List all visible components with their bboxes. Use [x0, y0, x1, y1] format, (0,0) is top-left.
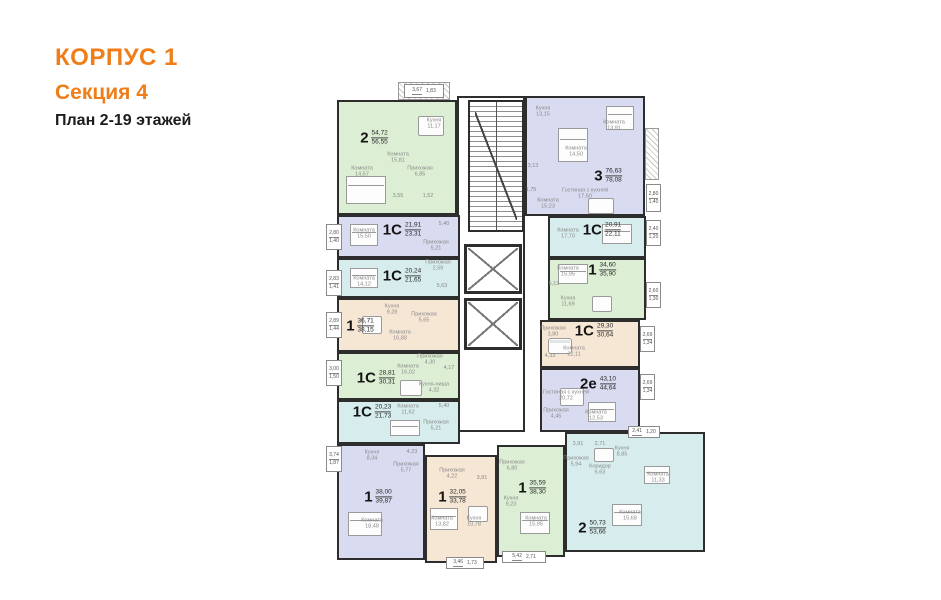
room-label: Прихожая4,22 [439, 468, 465, 481]
bed-icon [390, 420, 420, 436]
apartment-areas: 34,6035,90 [600, 261, 616, 278]
apartment-label: 254,7256,55 [360, 129, 388, 146]
balcony-label: 2,801,40 [646, 184, 661, 212]
room-label: Комната17,70 [557, 228, 579, 241]
apartment-type-number: 2е [580, 377, 597, 392]
apartment-type-number: 3 [594, 169, 602, 184]
side-ledge [645, 128, 659, 180]
apartment-type-number: 1С [353, 405, 372, 420]
room-label: Прихожая5,65 [411, 312, 437, 325]
room-label: Кухня11,69 [561, 296, 576, 309]
apartment-area-primary: 36,71 [358, 317, 374, 326]
apartment-type-number: 1 [438, 490, 446, 505]
balcony-area-half: 1,41 [329, 284, 339, 291]
balcony-label: 2,831,41 [326, 270, 342, 296]
room-label: Прихожая2,59 [425, 260, 451, 273]
apartment-label: 1С28,8130,31 [357, 369, 395, 386]
room-label: 3,91 [573, 441, 584, 447]
balcony-area-full: 2,69 [643, 332, 653, 340]
room-label: 4,33 [545, 353, 556, 359]
apartment-type-number: 1 [346, 319, 354, 334]
balcony-area-half: 1,40 [329, 238, 339, 245]
apartment-label: 134,6035,90 [588, 261, 616, 278]
apartment-type-number: 1 [518, 481, 526, 496]
balcony-label: 2,601,30 [646, 282, 661, 308]
balcony-area-half: 1,34 [643, 340, 653, 347]
apartment-area-primary: 20,91 [605, 221, 621, 230]
apartment-areas: 20,9122,11 [605, 221, 621, 238]
apartment-area-primary: 28,81 [379, 369, 395, 378]
apartment-area-total: 21,73 [375, 413, 391, 421]
room-label: Прихожая5,77 [393, 462, 419, 475]
balcony-area-full: 3,67 [412, 87, 422, 95]
balcony-label: 2,691,34 [640, 374, 655, 400]
balcony-area-half: 1,20 [649, 234, 659, 241]
room-label: Прихожая5,94 [563, 456, 589, 469]
room-label: Кухня13,15 [536, 106, 551, 119]
apartment-area-primary: 35,59 [530, 479, 546, 488]
apartment-area-total: 33,78 [450, 498, 466, 506]
room-label: Кухня-ниша4,32 [419, 382, 449, 395]
room-label: Комната11,33 [647, 472, 669, 485]
balcony-label: 2,691,34 [640, 326, 655, 352]
room-label: Кухня8,34 [365, 450, 380, 463]
balcony-area-half: 1,30 [649, 296, 659, 303]
elevator-2-icon [464, 298, 522, 350]
room-label: Комната14,12 [353, 276, 375, 289]
room-label: 2,71 [595, 441, 606, 447]
apartment-areas: 50,7353,66 [590, 519, 606, 536]
apartment-area-primary: 21,91 [405, 221, 421, 230]
apartment-label: 138,0039,87 [364, 488, 392, 505]
room-label: 3,55 [393, 193, 404, 199]
apartment-areas: 54,7256,55 [372, 129, 388, 146]
balcony-label: 3,001,50 [326, 360, 342, 386]
room-label: Прихожая6,80 [499, 460, 525, 473]
apartment-areas: 36,7138,15 [358, 317, 374, 334]
apartment-area-primary: 29,30 [597, 322, 613, 331]
room-label: Кухня9,23 [504, 496, 519, 509]
apartment-area-total: 38,15 [358, 327, 374, 335]
apartment-area-total: 35,90 [600, 271, 616, 279]
balcony-area-half: 1,87 [329, 460, 339, 467]
room-label: 4,23 [407, 449, 418, 455]
balcony-area-full: 2,83 [329, 276, 339, 284]
room-label: 3,81 [477, 475, 488, 481]
room-label: Комната13,82 [431, 516, 453, 529]
apartment-area-primary: 54,72 [372, 129, 388, 138]
balcony-area-half: 1,73 [467, 560, 477, 567]
room-label: 1,52 [423, 193, 434, 199]
apartment-type-number: 1С [583, 223, 602, 238]
room-label: Комната15,81 [387, 152, 409, 165]
apartment-type-number: 1 [364, 490, 372, 505]
room-label: Прихожая3,80 [540, 326, 566, 339]
balcony-area-full: 5,42 [512, 553, 522, 561]
room-label: 3,13 [528, 163, 539, 169]
room-label: Коридор6,63 [589, 464, 611, 477]
floor-plan-page: КОРПУС 1 Секция 4 План 2-19 этажей 254,7… [0, 0, 941, 600]
apartment-label: 132,0533,78 [438, 488, 466, 505]
room-label: Комната14,50 [565, 146, 587, 159]
floor-plan: 254,7256,55Кухня11,17Комната15,81Комната… [0, 0, 941, 600]
room-label: Кухня10,78 [467, 516, 482, 529]
balcony-area-full: 3,46 [453, 559, 463, 567]
apartment-area-primary: 76,63 [606, 167, 622, 176]
room-label: Комната11,62 [397, 404, 419, 417]
apartment-areas: 32,0533,78 [450, 488, 466, 505]
room-label: Прихожая4,45 [543, 408, 569, 421]
apartment-area-total: 53,66 [590, 529, 606, 537]
room-label: Прихожая6,85 [407, 166, 433, 179]
balcony-area-full: 2,69 [643, 380, 653, 388]
room-label: 4,17 [444, 365, 455, 371]
room-label: Кухня8,85 [615, 446, 630, 459]
room-label: Комната15,23 [537, 198, 559, 211]
apartment-label: 250,7353,66 [578, 519, 606, 536]
balcony-area-full: 2,89 [329, 318, 339, 326]
room-label: Комната22,11 [563, 346, 585, 359]
apartment-label: 135,5938,30 [518, 479, 546, 496]
balcony-label: 2,401,20 [646, 220, 661, 246]
room-label: Комната16,02 [397, 364, 419, 377]
apartment-label: 136,7138,15 [346, 317, 374, 334]
apartment-areas: 38,0039,87 [376, 488, 392, 505]
apartment-area-total: 38,30 [530, 489, 546, 497]
balcony-area-full: 2,80 [329, 230, 339, 238]
room-label: Прихожая4,30 [417, 354, 443, 367]
balcony-area-half: 1,50 [329, 374, 339, 381]
apartment-area-primary: 20,23 [375, 403, 391, 412]
room-label: 5,40 [439, 403, 450, 409]
apartment-type-number: 1С [383, 269, 402, 284]
room-label: 5,63 [437, 283, 448, 289]
apartment-areas: 21,9123,31 [405, 221, 421, 238]
apartment-area-total: 23,31 [405, 231, 421, 239]
apartment-area-total: 44,64 [600, 385, 616, 393]
apartment-area-total: 30,31 [379, 379, 395, 387]
balcony-label: 3,741,87 [326, 446, 342, 472]
balcony-label: 2,891,44 [326, 312, 342, 338]
room-label: Комната18,48 [361, 518, 383, 531]
balcony-label: 5,422,71 [502, 551, 546, 563]
balcony-area-half: 1,40 [649, 199, 659, 206]
balcony-label: 2,801,40 [326, 224, 342, 250]
room-label: Кухня11,17 [427, 118, 442, 131]
balcony-area-full: 2,40 [649, 226, 659, 234]
balcony-area-half: 1,44 [329, 326, 339, 333]
apartment-area-total: 21,65 [405, 277, 421, 285]
room-label: Прихожая5,21 [423, 420, 449, 433]
apartment-type-number: 1 [588, 263, 596, 278]
apartment-area-primary: 38,00 [376, 488, 392, 497]
room-label: Комната15,95 [525, 516, 547, 529]
balcony-area-full: 2,41 [632, 428, 642, 436]
apartment-label: 2е43,1044,64 [580, 375, 616, 392]
balcony-area-full: 3,00 [329, 366, 339, 374]
balcony-label: 2,411,20 [628, 426, 660, 438]
room-label: Комната16,88 [389, 330, 411, 343]
room-label: Прихожая5,21 [423, 240, 449, 253]
apartment-label: 1С20,9122,11 [583, 221, 621, 238]
room-label: Кухня9,28 [385, 304, 400, 317]
room-label: 1,75 [526, 187, 537, 193]
balcony-area-half: 1,34 [643, 388, 653, 395]
balcony-area-half: 1,83 [426, 88, 436, 95]
room-label: Комната15,50 [353, 228, 375, 241]
room-label: Комната12,53 [585, 410, 607, 423]
apartment-type-number: 2 [360, 131, 368, 146]
balcony-area-full: 2,80 [649, 191, 659, 199]
apartment-label: 1С21,9123,31 [383, 221, 421, 238]
room-label: Гостиная с кухней17,60 [562, 188, 608, 201]
apartment-area-primary: 32,05 [450, 488, 466, 497]
room-label: Комната13,91 [603, 120, 625, 133]
apartment-area-total: 30,64 [597, 332, 613, 340]
balcony-area-full: 3,74 [329, 452, 339, 460]
apartment-areas: 35,5938,30 [530, 479, 546, 496]
apartment-area-total: 22,11 [605, 231, 621, 239]
balcony-label: 3,461,73 [446, 557, 484, 569]
balcony-label: 3,671,83 [404, 84, 444, 98]
apartment-area-primary: 50,73 [590, 519, 606, 528]
room-label: Комната15,68 [619, 510, 641, 523]
apartment-label: 1С20,2321,73 [353, 403, 391, 420]
balcony-area-full: 2,60 [649, 288, 659, 296]
room-label: 5,13 [549, 281, 560, 287]
room-label: Комната14,57 [351, 166, 373, 179]
apartment-type-number: 1С [383, 223, 402, 238]
apartment-area-primary: 43,10 [600, 375, 616, 384]
apartment-label: 1С20,2421,65 [383, 267, 421, 284]
bed-icon [346, 176, 386, 204]
apartment-type-number: 2 [578, 521, 586, 536]
apartment-label: 1С29,3030,64 [575, 322, 613, 339]
apartment-type-number: 1С [357, 371, 376, 386]
balcony-area-half: 1,20 [646, 429, 656, 436]
elevator-1-icon [464, 244, 522, 294]
table-icon [594, 448, 614, 462]
balcony-area-half: 2,71 [526, 554, 536, 561]
staircase-icon [468, 100, 524, 232]
apartment-area-total: 78,08 [606, 177, 622, 185]
room-label: Комната15,95 [557, 266, 579, 279]
room-label: 5,40 [439, 221, 450, 227]
apartment-label: 376,6378,08 [594, 167, 622, 184]
apartment-area-total: 56,55 [372, 139, 388, 147]
apartment-area-total: 39,87 [376, 498, 392, 506]
apartment-area-primary: 20,24 [405, 267, 421, 276]
apartment-areas: 28,8130,31 [379, 369, 395, 386]
apartment-areas: 76,6378,08 [606, 167, 622, 184]
apartment-area-primary: 34,60 [600, 261, 616, 270]
apartment-type-number: 1С [575, 324, 594, 339]
apartment-areas: 43,1044,64 [600, 375, 616, 392]
table-icon [592, 296, 612, 312]
table-icon [588, 198, 614, 214]
apartment-areas: 29,3030,64 [597, 322, 613, 339]
apartment-areas: 20,2321,73 [375, 403, 391, 420]
apartment-areas: 20,2421,65 [405, 267, 421, 284]
